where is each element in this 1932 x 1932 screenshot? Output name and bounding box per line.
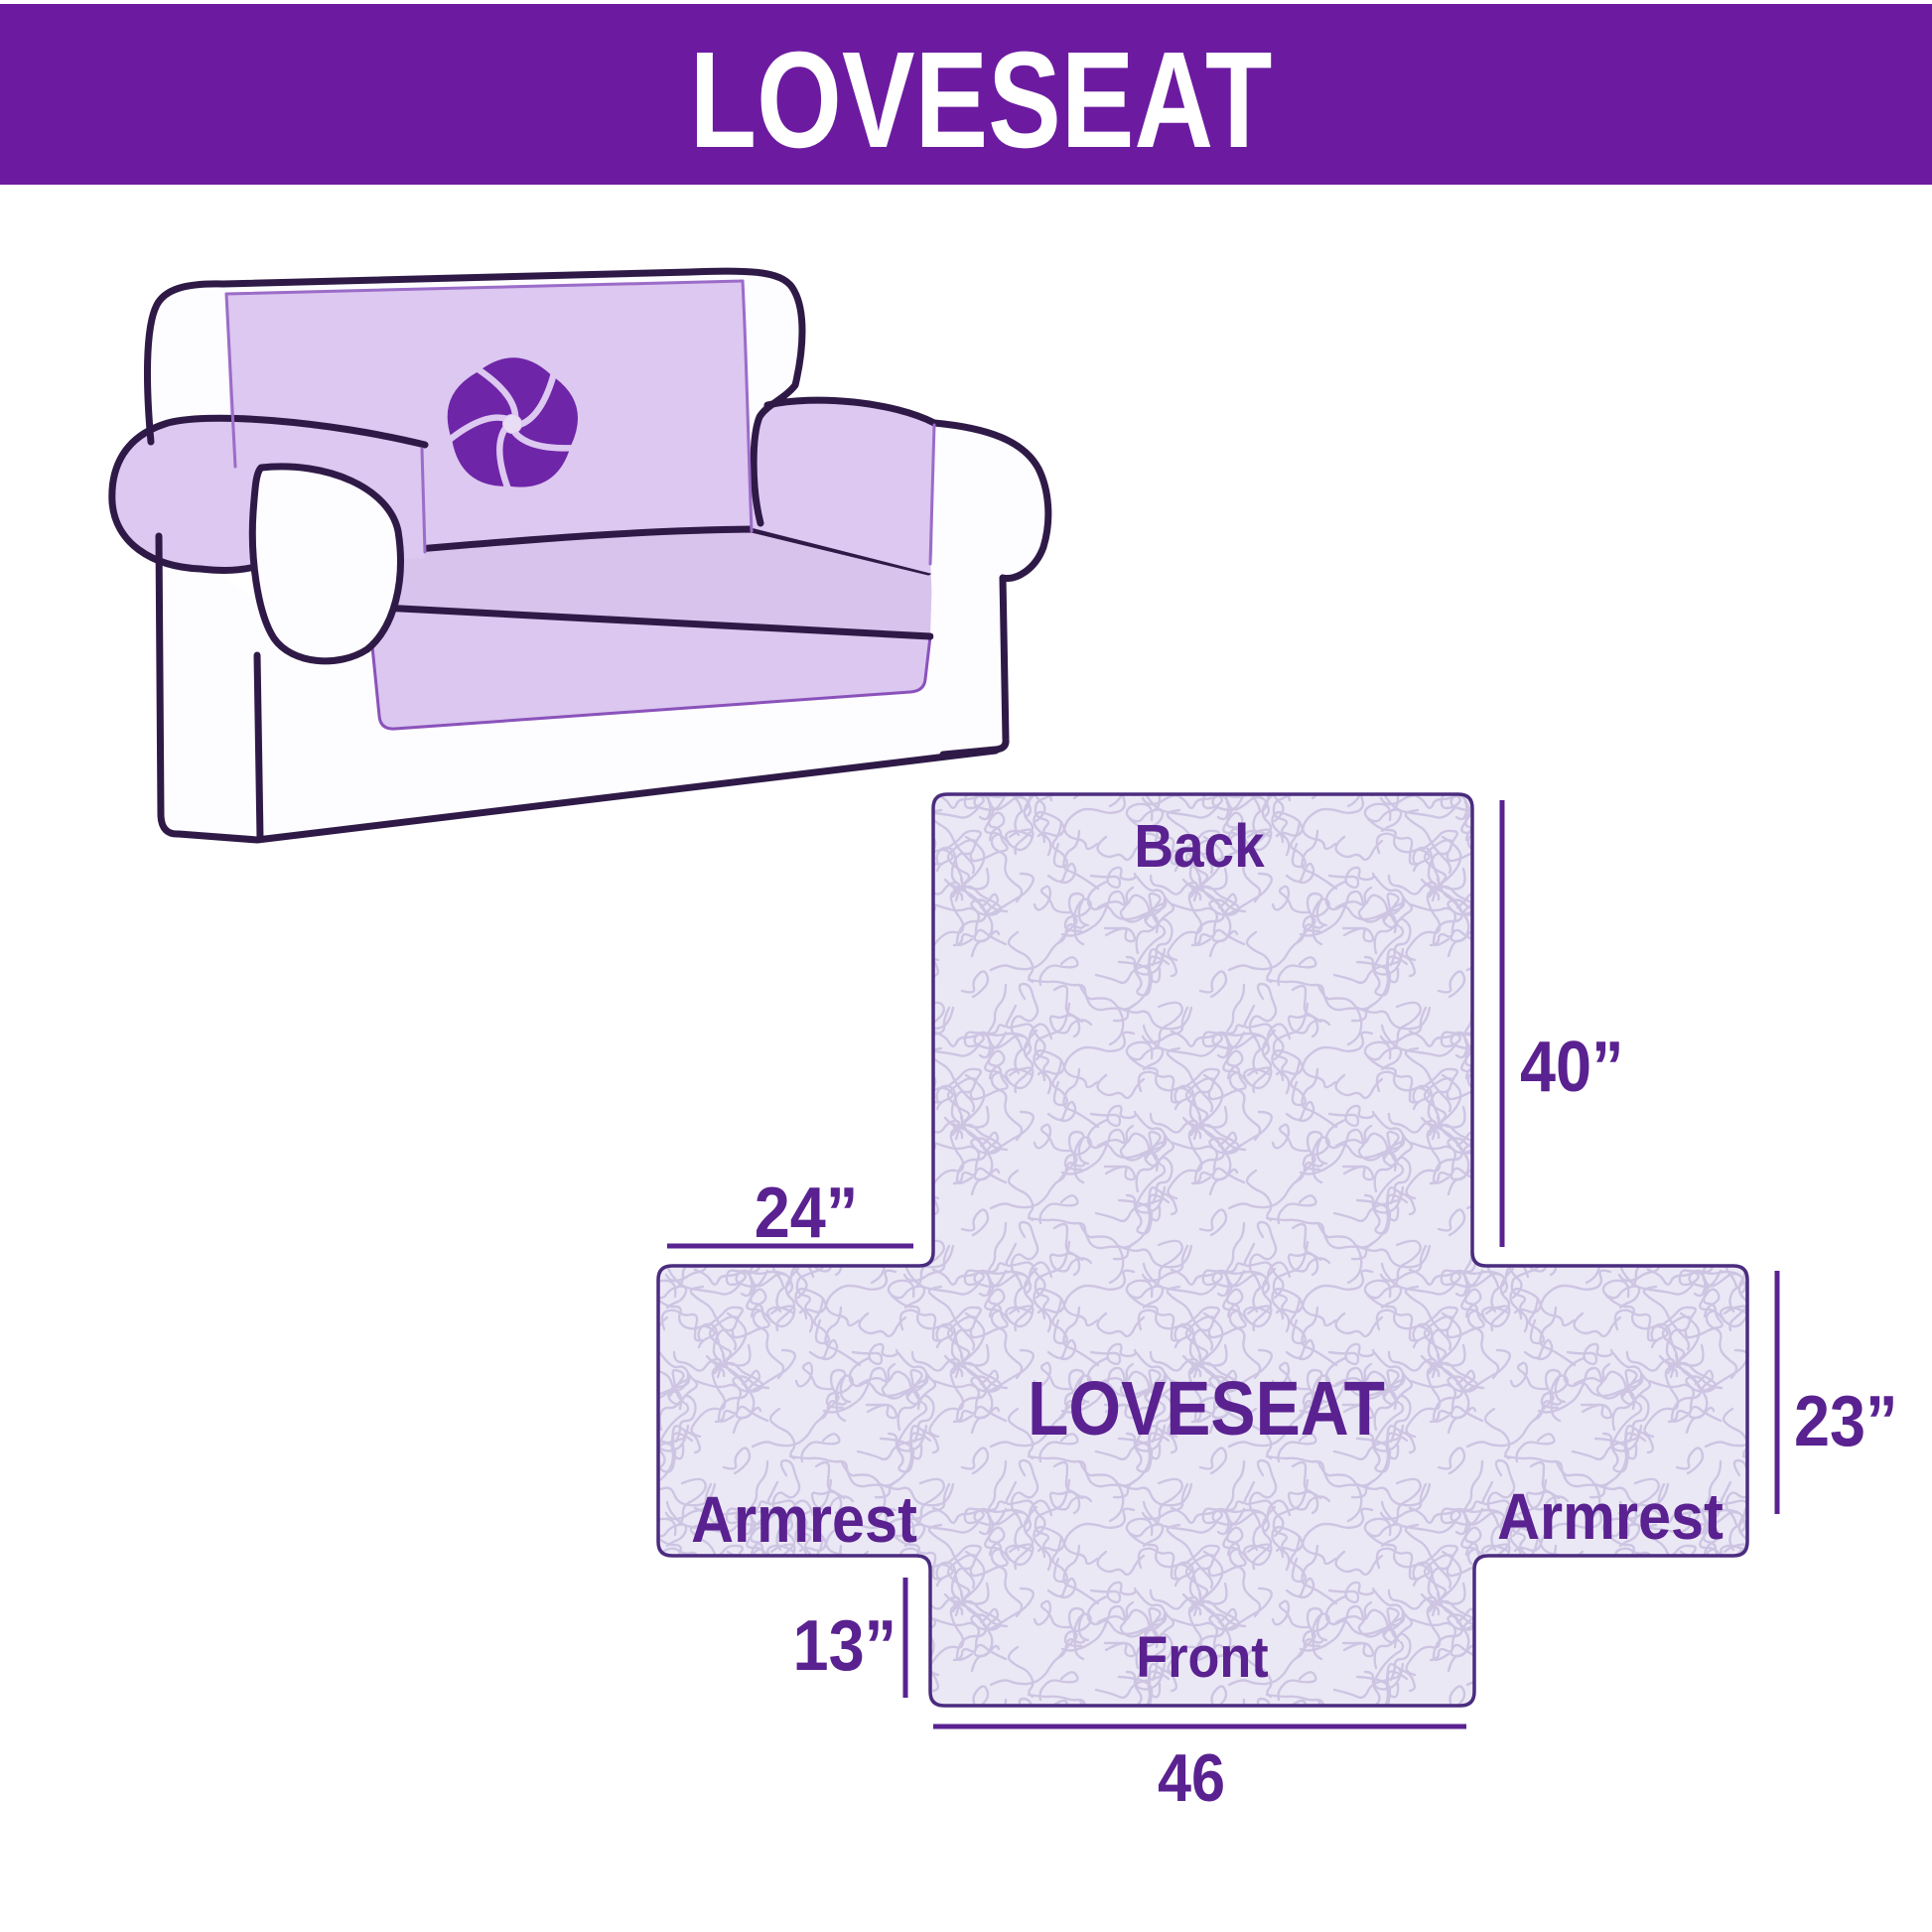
svg-text:LOVESEAT: LOVESEAT — [1028, 1366, 1385, 1451]
svg-text:46: 46 — [1158, 1739, 1225, 1816]
svg-text:23”: 23” — [1794, 1381, 1897, 1461]
svg-text:24”: 24” — [755, 1173, 858, 1253]
svg-text:Back: Back — [1134, 812, 1265, 880]
svg-text:Armrest: Armrest — [1497, 1480, 1724, 1554]
svg-text:LOVESEAT: LOVESEAT — [690, 24, 1273, 176]
svg-text:Armrest: Armrest — [691, 1483, 917, 1557]
svg-text:13”: 13” — [793, 1605, 897, 1686]
svg-text:40”: 40” — [1520, 1027, 1623, 1107]
svg-text:Front: Front — [1136, 1624, 1268, 1689]
